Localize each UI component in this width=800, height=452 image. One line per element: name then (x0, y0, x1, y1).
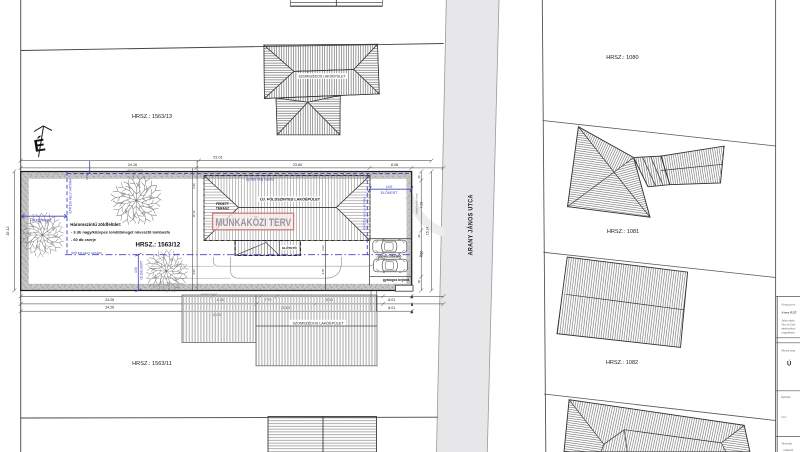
svg-text:MUNKAKÖZI TERV: MUNKAKÖZI TERV (215, 217, 291, 229)
svg-text:4.50: 4.50 (420, 251, 424, 258)
svg-text:4.50: 4.50 (321, 268, 325, 274)
svg-text:8.01: 8.01 (388, 306, 395, 310)
svg-text:ÚJ. FÖLDSZINTES LAKÓÉPÜLET: ÚJ. FÖLDSZINTES LAKÓÉPÜLET (260, 197, 321, 202)
svg-text:HRSZ.: 1080: HRSZ.: 1080 (606, 55, 638, 61)
svg-text:4.50: 4.50 (192, 269, 196, 275)
svg-text:Háromszintű zöldfelület:: Háromszintű zöldfelület: (70, 222, 122, 227)
svg-text:Munka meg: Munka meg (782, 348, 796, 352)
svg-text:Ú: Ú (787, 361, 791, 368)
svg-text:40: 40 (417, 280, 421, 284)
svg-text:engedélyez: engedélyez (782, 330, 796, 334)
svg-text:Cím: Cím (782, 415, 787, 419)
svg-text:szabályozási vonal: szabályozási vonal (415, 193, 418, 214)
svg-text:15.16: 15.16 (192, 210, 196, 217)
svg-text:HRSZ.: 1563/12: HRSZ.: 1563/12 (136, 241, 181, 248)
svg-text:Megjegyzés: Megjegyzés (782, 303, 797, 307)
svg-text:ARANY JÁNOS UTCA: ARANY JÁNOS UTCA (467, 194, 475, 255)
svg-text:ÉPÍTÉSI HELY HATÁRA: ÉPÍTÉSI HELY HATÁRA (362, 197, 367, 230)
svg-text:24.16: 24.16 (128, 163, 137, 167)
svg-text:24.26: 24.26 (105, 298, 114, 302)
svg-text:Tervezők: Tervezők (782, 442, 793, 446)
svg-text:Terv és Dok: Terv és Dok (782, 322, 796, 326)
svg-text:24.26: 24.26 (105, 306, 114, 310)
svg-text:23.60: 23.60 (293, 163, 302, 167)
svg-text:51.01: 51.01 (213, 156, 222, 160)
svg-text:HRSZ.: 1563/11: HRSZ.: 1563/11 (132, 361, 172, 367)
svg-text:ÉPÍTÉSI HELY HATÁRA: ÉPÍTÉSI HELY HATÁRA (68, 178, 73, 214)
svg-text:15,00: 15,00 (85, 172, 89, 180)
svg-text:4.00: 4.00 (386, 185, 393, 189)
svg-text:vázrajz szerint: vázrajz szerint (126, 168, 143, 172)
svg-text:Jelen vázla: Jelen vázla (782, 318, 796, 322)
svg-text:40: 40 (417, 175, 421, 179)
svg-text:SZOMSZÉDOS LAKÓÉPÜLET: SZOMSZÉDOS LAKÓÉPÜLET (299, 74, 346, 79)
svg-text:HRSZ.: 1082: HRSZ.: 1082 (606, 360, 638, 366)
svg-text:- 3 db nagy/közepes lombtömege: - 3 db nagy/közepes lombtömeget növesztő… (71, 230, 171, 235)
svg-text:4.50: 4.50 (134, 267, 138, 273)
svg-text:A terv ÚJ É: A terv ÚJ É (782, 310, 797, 315)
svg-text:15.12: 15.12 (6, 226, 10, 235)
svg-text:elektronikus: elektronikus (782, 326, 797, 330)
svg-text:gyalogos bejárat: gyalogos bejárat (383, 278, 410, 282)
svg-text:8.01: 8.01 (388, 298, 395, 302)
svg-text:ELŐTETŐ: ELŐTETŐ (282, 245, 297, 250)
svg-text:TERASZ: TERASZ (216, 207, 229, 211)
svg-text:HÁTSÓKERT: HÁTSÓKERT (30, 218, 52, 223)
svg-text:építési hely határa: építési hely határa (246, 178, 274, 182)
svg-text:FEDETT: FEDETT (216, 202, 229, 206)
svg-text:Csikai R: Csikai R (784, 448, 794, 452)
svg-text:6.96: 6.96 (192, 183, 196, 189)
svg-text:8.08: 8.08 (391, 163, 398, 167)
svg-text:- 60 db cserje: - 60 db cserje (71, 237, 97, 242)
svg-text:15.14: 15.14 (425, 227, 429, 235)
svg-text:OLDALKERT: OLDALKERT (140, 261, 144, 280)
svg-text:ÉPÍTÉSI HELY HATÁRA: ÉPÍTÉSI HELY HATÁRA (72, 250, 103, 255)
svg-text:40: 40 (417, 234, 421, 238)
svg-text:SZOMSZÉDOS LAKÓÉPÜLET: SZOMSZÉDOS LAKÓÉPÜLET (292, 320, 344, 325)
svg-text:ELŐKERT: ELŐKERT (381, 190, 399, 195)
svg-text:7.30: 7.30 (420, 202, 424, 209)
svg-text:HRSZ.: 1563/13: HRSZ.: 1563/13 (132, 114, 172, 120)
svg-text:2.02: 2.02 (321, 245, 325, 251)
svg-text:HRSZ.: 1081: HRSZ.: 1081 (607, 229, 639, 235)
